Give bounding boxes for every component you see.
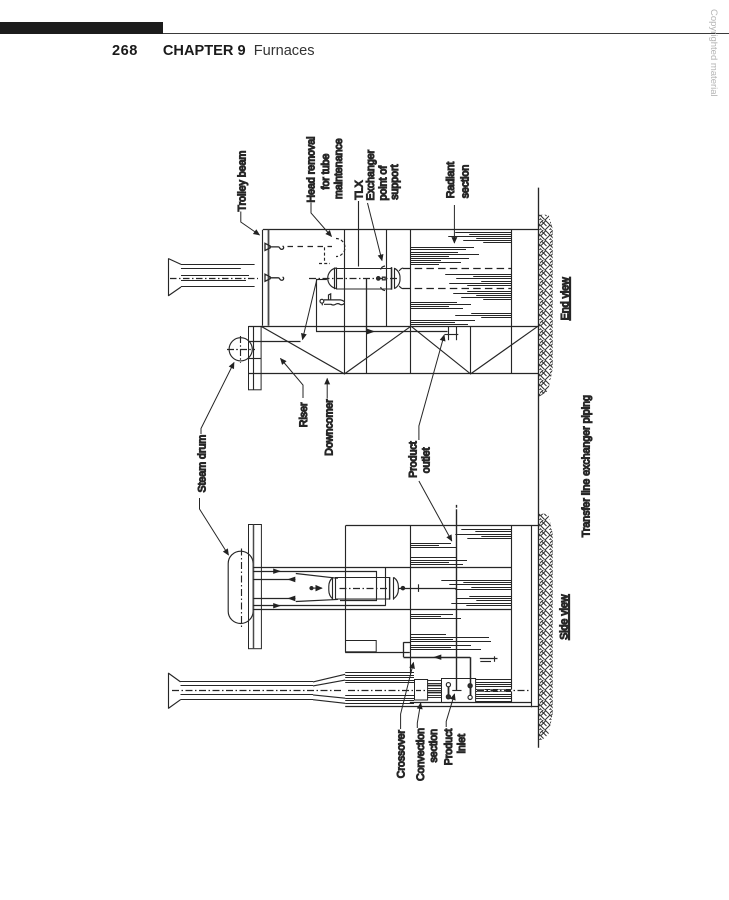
svg-text:maintenance: maintenance bbox=[333, 138, 345, 199]
svg-text:TLX: TLX bbox=[354, 180, 366, 199]
svg-text:Convection: Convection bbox=[415, 728, 427, 781]
svg-text:for tube: for tube bbox=[320, 153, 332, 189]
svg-text:Exchanger: Exchanger bbox=[365, 149, 377, 200]
svg-text:Head removal: Head removal bbox=[306, 137, 318, 203]
svg-text:Side view: Side view bbox=[559, 594, 571, 640]
svg-text:section: section bbox=[459, 165, 471, 199]
svg-text:Product: Product bbox=[443, 729, 455, 766]
svg-text:Riser: Riser bbox=[298, 402, 310, 427]
svg-text:Downcomer: Downcomer bbox=[324, 399, 336, 456]
svg-text:section: section bbox=[428, 729, 440, 763]
svg-text:Radiant: Radiant bbox=[445, 162, 457, 199]
svg-text:outlet: outlet bbox=[421, 447, 433, 473]
svg-text:Crossover: Crossover bbox=[395, 729, 407, 778]
svg-text:Product: Product bbox=[407, 441, 419, 478]
svg-text:End view: End view bbox=[560, 277, 572, 320]
svg-text:Trolley beam: Trolley beam bbox=[237, 150, 249, 211]
svg-text:point of: point of bbox=[378, 166, 390, 201]
svg-text:Steam drum: Steam drum bbox=[197, 435, 209, 493]
svg-text:support: support bbox=[389, 164, 401, 199]
svg-text:Transfer line exchanger piping: Transfer line exchanger piping bbox=[581, 395, 593, 537]
svg-text:inlet: inlet bbox=[456, 734, 468, 753]
